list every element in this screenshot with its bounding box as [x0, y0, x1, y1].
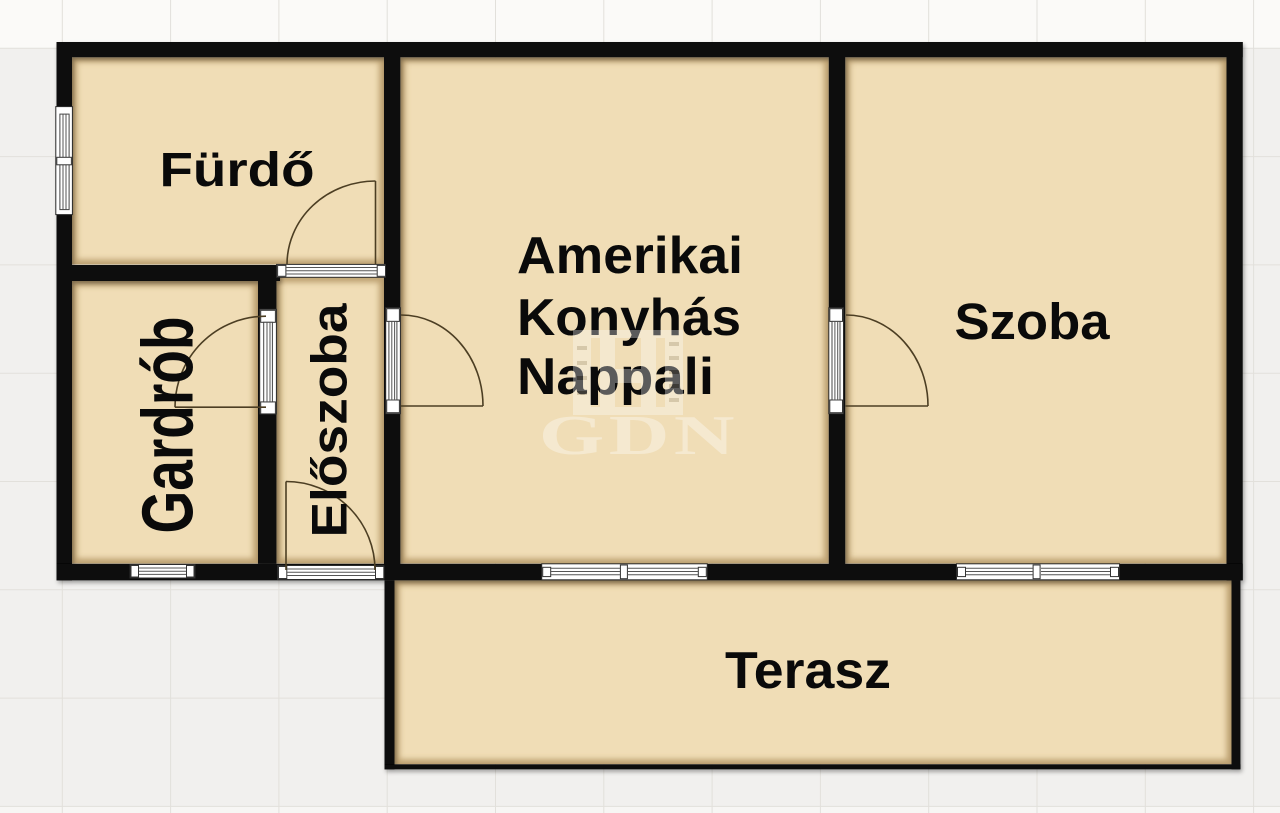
svg-text:Terasz: Terasz — [725, 642, 891, 700]
svg-text:Amerikai: Amerikai — [517, 227, 743, 285]
svg-text:Fürdő: Fürdő — [160, 144, 315, 197]
svg-text:Gardrób: Gardrób — [129, 317, 209, 534]
svg-text:Konyhás: Konyhás — [517, 289, 741, 347]
svg-text:Előszoba: Előszoba — [302, 302, 358, 537]
svg-text:GDN: GDN — [539, 405, 739, 467]
svg-text:Szoba: Szoba — [955, 293, 1111, 350]
